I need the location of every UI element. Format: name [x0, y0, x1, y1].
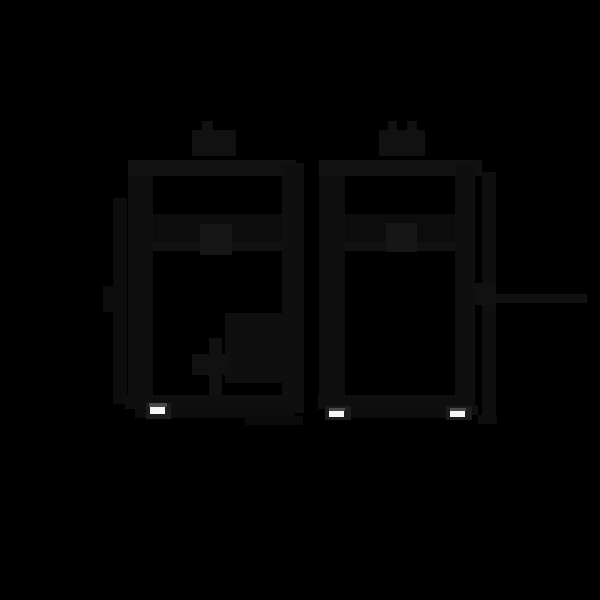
right-unit-control-knob [386, 223, 417, 252]
right-unit-left-wall [319, 176, 345, 402]
right-unit-illustration [0, 0, 600, 600]
appliance-dimension-diagram [0, 0, 600, 600]
right-unit-foot-white-right [450, 411, 465, 417]
right-unit-flue-collar [379, 130, 425, 156]
right-unit-right-wall [455, 163, 475, 413]
right-unit-dim-bottom-hook-b [478, 415, 497, 424]
right-unit-callout-line [496, 294, 587, 303]
right-unit-callout-block [475, 283, 496, 305]
right-unit-foot-white-left [329, 411, 344, 417]
